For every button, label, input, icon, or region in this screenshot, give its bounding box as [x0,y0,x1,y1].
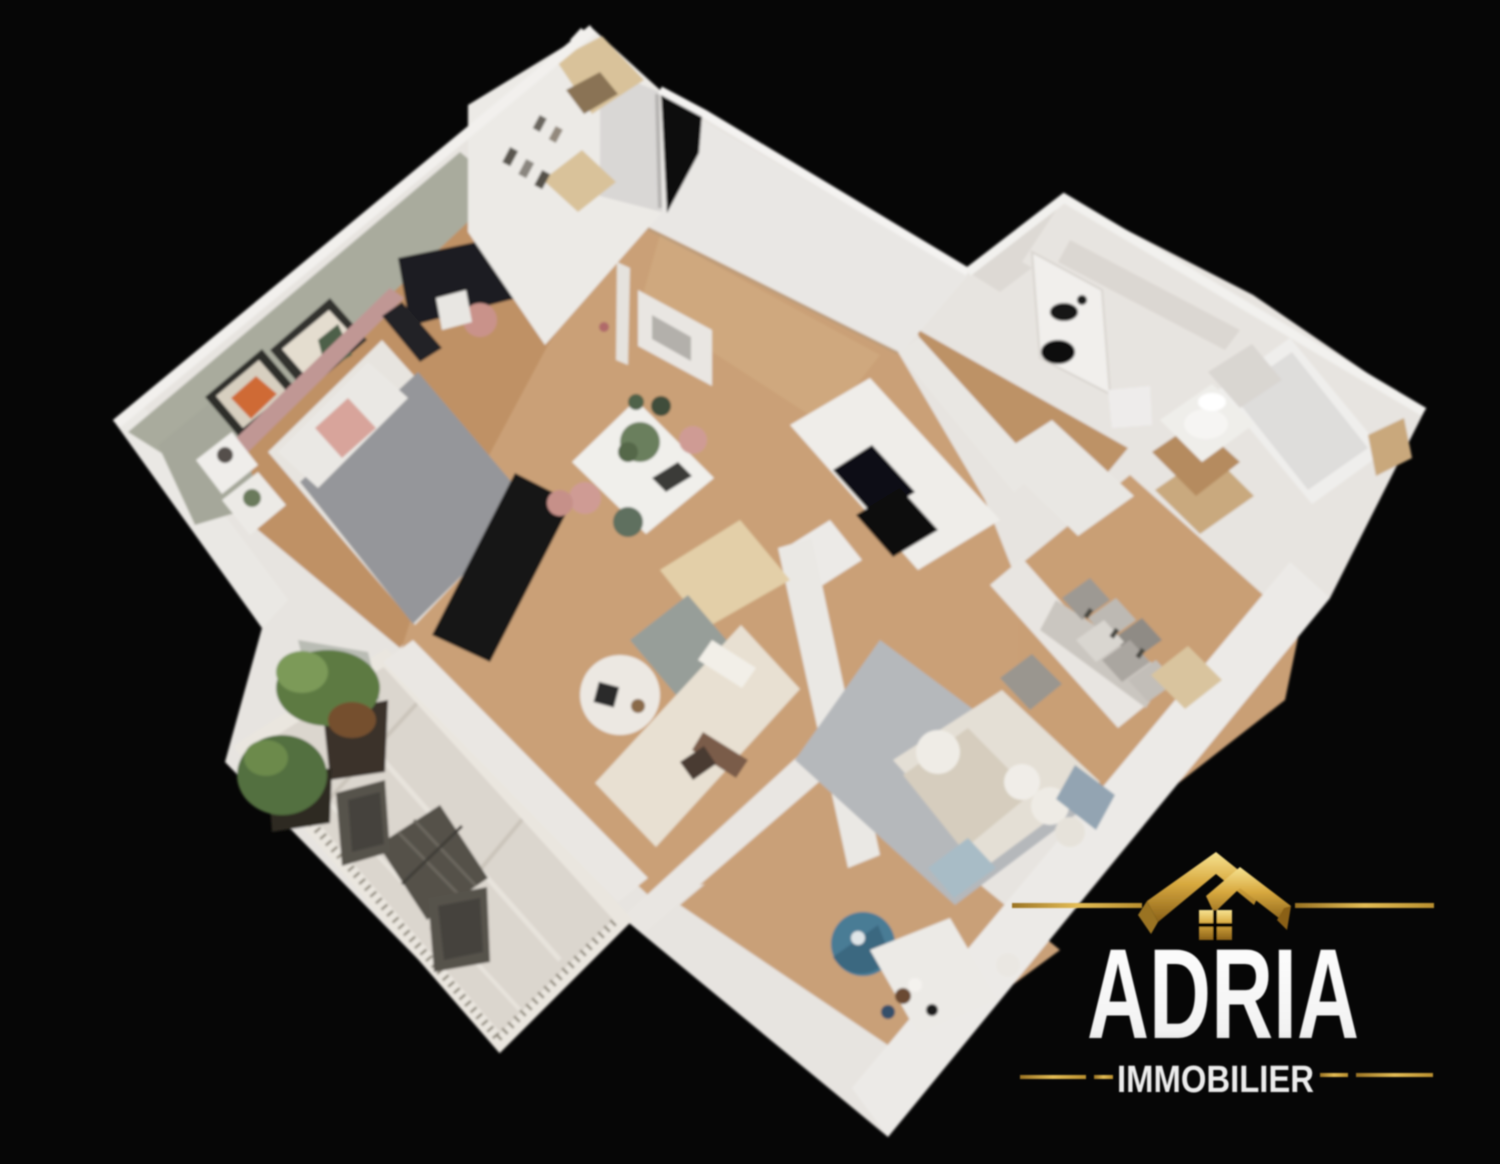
svg-text:IMMOBILIER: IMMOBILIER [1117,1059,1314,1101]
svg-text:ADRIA: ADRIA [1087,923,1359,1066]
